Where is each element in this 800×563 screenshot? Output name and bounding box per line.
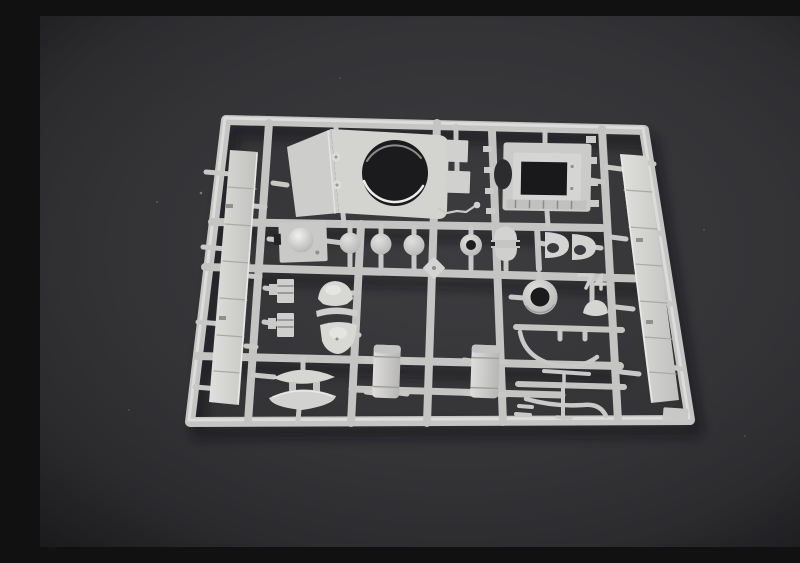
- model-sprue-photo: Unassembled model kit sprue of tank part…: [40, 16, 800, 547]
- vignette-overlay: [40, 16, 800, 547]
- sprue-photo-canvas: [40, 16, 800, 547]
